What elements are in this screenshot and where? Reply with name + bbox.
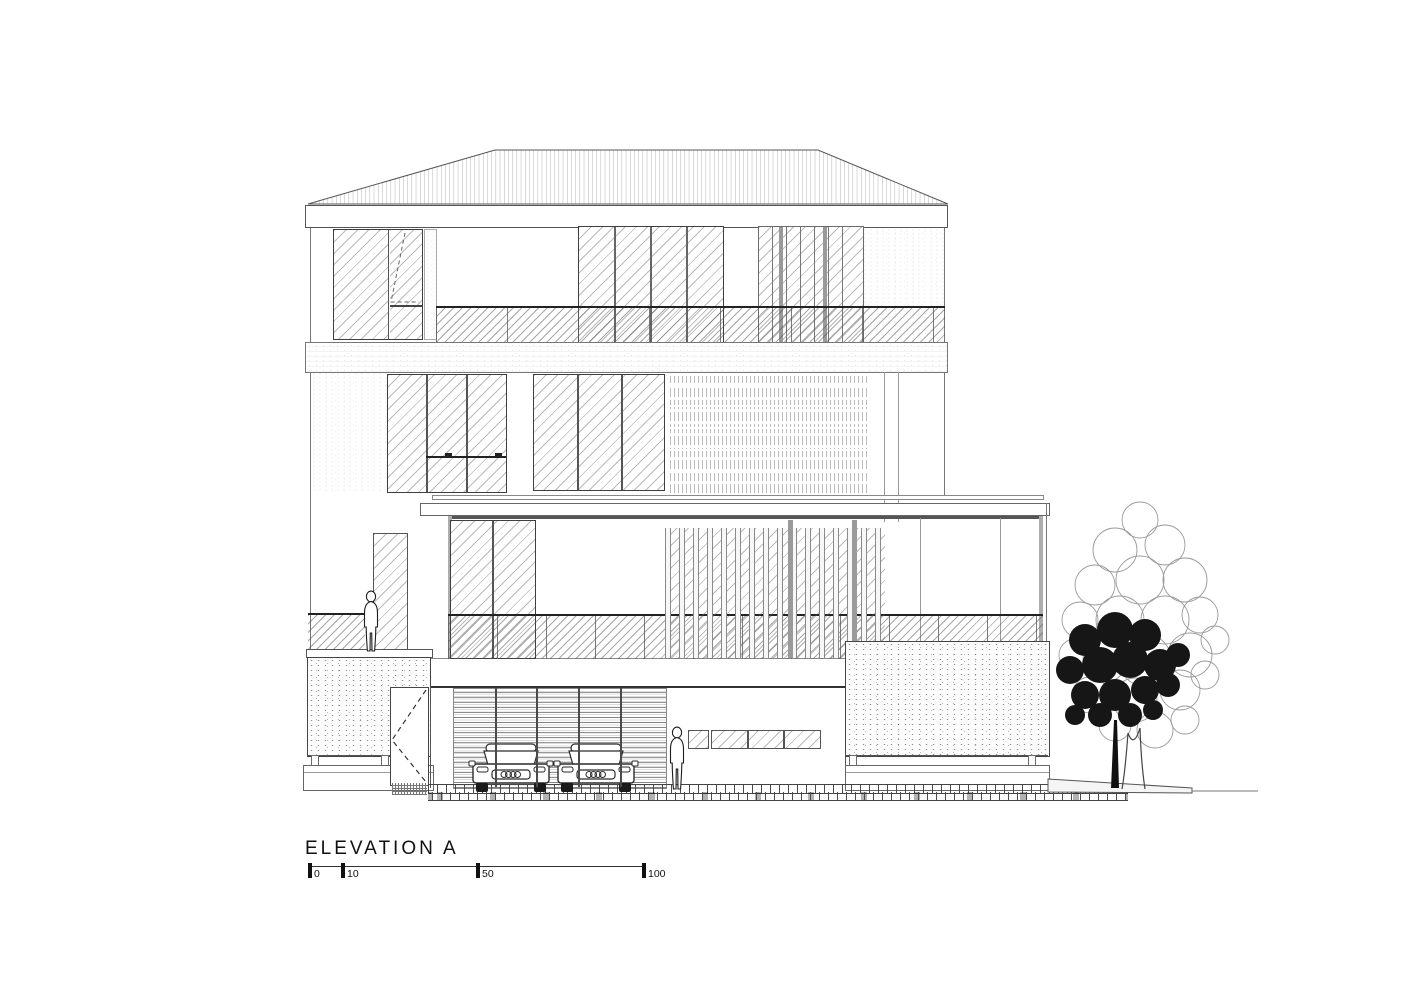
scale-tick-label: 50 [482,868,494,880]
screen-mullion [495,688,497,787]
window-mullion [426,375,428,492]
window-gf-left-narrow [373,533,408,650]
garage-louver-screen [453,688,667,789]
scale-tick [642,863,646,878]
scale-tick [308,863,312,878]
window-2f-right [533,374,665,491]
balustrade-left-terrace [308,613,365,652]
window-mullion [466,375,468,492]
paving-row-2 [428,792,1128,801]
plinth-line [846,772,1049,773]
drawing-title: ELEVATION A [305,838,459,860]
window-pane [334,230,389,339]
scale-tick [476,863,480,878]
window-sash-operable [390,230,422,339]
handle [495,453,502,456]
garage-jamb-left [430,686,431,788]
tree-crown-dark [1056,612,1190,727]
gate-door [390,687,429,786]
window-mullion [621,375,623,490]
hipped-roof [308,150,948,204]
scale-tick-label: 100 [648,868,666,880]
screen-mullion [620,688,622,787]
roof-fascia [305,205,948,228]
vector-overlay [0,0,1414,1000]
window-2f-left [387,374,507,493]
stone-wall-right [845,641,1050,757]
screen-mullion [536,688,538,787]
window-mullion [577,375,579,490]
person-garage [671,727,684,789]
floor-slab-band [305,342,948,373]
pavilion-roof-fascia [420,503,1050,516]
window-mullion [747,731,749,748]
window-mullion [783,731,785,748]
drawing-sheet: ELEVATION A 0 10 50 100 [0,0,1414,1000]
pavilion-parapet-cap [432,495,1044,500]
scale-tick-label: 0 [314,868,320,880]
fin-post [788,520,793,658]
scale-tick-group: 10 [341,866,345,867]
fence-rail-right [845,755,1048,761]
window-garage-small [688,730,709,749]
timber-slat-screen-2f [670,375,867,493]
scale-tick [341,863,345,878]
glazing-head-rail [448,516,1043,519]
tree [1056,502,1229,789]
scale-tick-label: 10 [347,868,359,880]
tree-trunk-dark [1111,720,1119,788]
wall-stipple-2f-left [311,372,387,493]
scale-tick-group: 100 [642,866,646,867]
handle [445,453,452,456]
fin-post [852,520,857,658]
screen-mullion [578,688,580,787]
window-glazing [712,731,820,748]
scale-tick-group: 0 [308,866,312,867]
tree-crown-light [1059,502,1229,748]
window-transom [390,305,422,307]
scale-tick-group: 50 [476,866,480,867]
tree-trunk-light [1122,728,1145,789]
window-garage-strip [711,730,821,749]
window-transom-rail [426,456,506,458]
drain-grate [392,783,427,795]
balustrade-3f [436,306,945,344]
window-glazing [534,375,664,490]
window-glazing [374,534,407,649]
pavilion-edge-right [1046,503,1047,658]
window-3f-left [333,229,423,340]
window-glazing [388,375,506,492]
